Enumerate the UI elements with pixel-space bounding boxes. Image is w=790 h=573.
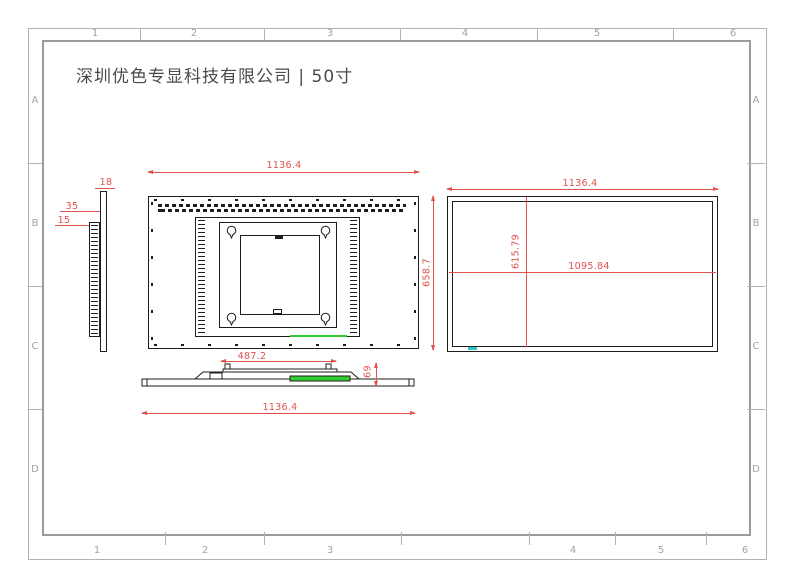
vesa-keyhole [225, 225, 238, 239]
grid-row-label: B [750, 218, 762, 230]
grid-row-label: D [29, 464, 41, 476]
grid-row-label: A [750, 95, 762, 107]
vesa-keyhole [225, 312, 238, 326]
dim-vesa-width-line [221, 361, 336, 362]
vesa-keyhole [319, 225, 332, 239]
grid-tick [401, 532, 402, 545]
grid-tick [747, 286, 765, 287]
grid-col-label: 5 [589, 28, 605, 40]
side-view-vent-hatch [91, 225, 98, 334]
grid-tick [264, 28, 265, 40]
rear-screw-marks-left [151, 202, 153, 343]
grid-tick [264, 532, 265, 545]
grid-tick [140, 28, 141, 40]
grid-row-label: D [750, 464, 762, 476]
dim-overall-height: 658.7 [422, 251, 433, 295]
grid-tick [400, 28, 401, 40]
grid-col-label: 2 [197, 545, 213, 557]
dim-front-width: 1136.4 [550, 178, 610, 189]
dim-overall-height-line [433, 196, 434, 350]
rear-top-vent-row [158, 204, 406, 207]
vesa-top-tag [275, 236, 283, 239]
dim-panel-thickness: 18 [96, 177, 116, 188]
grid-col-label: 1 [89, 545, 105, 557]
vesa-keyhole [319, 312, 332, 326]
grid-col-label: 3 [322, 28, 338, 40]
grid-col-label: 4 [565, 545, 581, 557]
vesa-bottom-tag [273, 309, 282, 314]
rear-screw-marks-right [414, 202, 416, 343]
dim-rear-width: 1136.4 [254, 160, 314, 171]
dim-profile-height-line [376, 363, 377, 386]
plate-vent-right [350, 220, 357, 334]
dim-active-height: 615.79 [511, 230, 522, 274]
grid-col-label: 6 [737, 545, 753, 557]
dim-panel-thickness-line [95, 188, 115, 189]
grid-tick [673, 28, 674, 40]
touch-indicator-cyan [468, 347, 477, 350]
grid-tick [28, 286, 42, 287]
front-view-screen [452, 201, 713, 347]
grid-row-label: B [29, 218, 41, 230]
grid-col-label: 4 [457, 28, 473, 40]
dim-profile-height: 69 [363, 362, 374, 382]
cad-drawing-sheet: 1 2 3 4 5 6 1 2 3 4 5 6 A B C D A B C D … [0, 0, 790, 573]
rear-screw-marks-bottom [154, 344, 413, 346]
grid-row-label: A [29, 95, 41, 107]
dim-depth-total-line [60, 211, 100, 212]
grid-row-label: C [750, 341, 762, 353]
dim-active-width: 1095.84 [554, 261, 624, 272]
active-area-hline [449, 272, 716, 273]
rear-screw-marks-top [154, 199, 413, 201]
dim-rear-width-line [148, 172, 419, 173]
side-view-panel [100, 191, 107, 352]
grid-row-label: C [29, 341, 41, 353]
rear-top-vent-row [158, 209, 406, 212]
grid-tick [615, 532, 616, 545]
plate-vent-left [198, 220, 205, 334]
grid-col-label: 2 [186, 28, 202, 40]
grid-tick [529, 532, 530, 545]
grid-tick [28, 163, 42, 164]
grid-col-label: 3 [322, 545, 338, 557]
grid-col-label: 5 [653, 545, 669, 557]
connector-bar-green [290, 335, 347, 337]
dim-bottom-width: 1136.4 [250, 402, 310, 413]
grid-tick [165, 532, 166, 545]
grid-tick [747, 163, 765, 164]
grid-tick [747, 409, 765, 410]
grid-tick [537, 28, 538, 40]
drawing-title: 深圳优色专显科技有限公司 | 50寸 [76, 62, 353, 87]
dim-depth-front-line [55, 225, 89, 226]
grid-tick [706, 532, 707, 545]
vesa-inner-opening [240, 235, 320, 315]
dim-bottom-width-line [142, 413, 415, 414]
grid-col-label: 1 [87, 28, 103, 40]
grid-tick [28, 409, 42, 410]
dim-front-width-line [447, 189, 718, 190]
grid-col-label: 6 [725, 28, 741, 40]
